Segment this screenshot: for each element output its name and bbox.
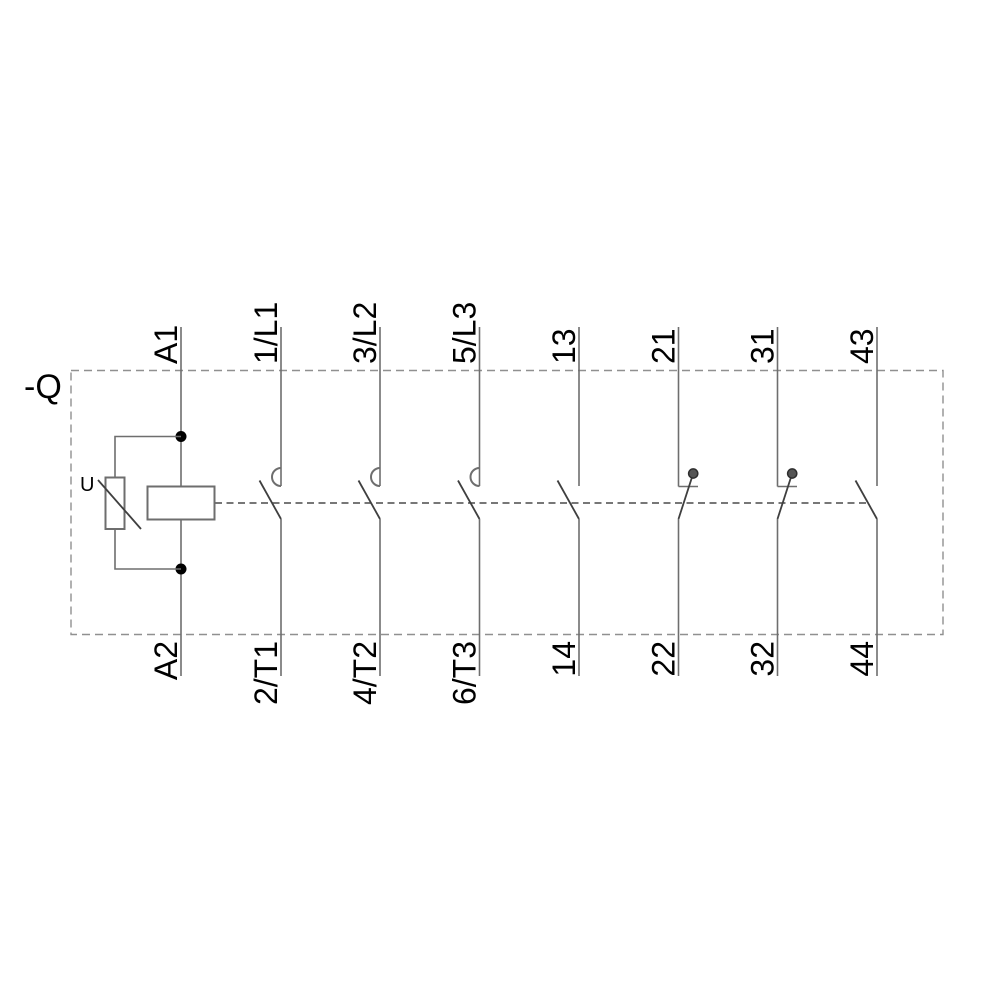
terminal-label-a2: A2 <box>148 641 184 680</box>
terminal-label-43: 43 <box>844 328 880 364</box>
main-contact-icon <box>272 468 281 486</box>
terminal-label-2t1: 2/T1 <box>248 641 284 705</box>
terminal-label-44: 44 <box>844 641 880 677</box>
suppressor-branch-top-wire <box>115 437 181 478</box>
terminal-label-13: 13 <box>546 328 582 364</box>
varistor-symbol <box>106 478 125 530</box>
pole-43: 43 44 <box>844 327 880 677</box>
varistor-diagonal-stroke <box>98 480 141 529</box>
nc-contact-pivot-icon <box>689 469 698 478</box>
terminal-label-21: 21 <box>646 328 682 364</box>
terminal-label-31: 31 <box>745 328 781 364</box>
pole-31: 31 32 <box>745 327 798 677</box>
coil-symbol <box>148 487 215 520</box>
contactor-wiring-diagram: -Q U A1 A2 1/L1 2/T1 3/L2 4/T2 <box>0 0 1000 1000</box>
terminal-label-3l2: 3/L2 <box>347 302 383 364</box>
pole-13: 13 14 <box>546 327 582 677</box>
terminal-label-5l3: 5/L3 <box>447 302 483 364</box>
terminal-label-a1: A1 <box>148 325 184 364</box>
schematic-canvas: -Q U A1 A2 1/L1 2/T1 3/L2 4/T2 <box>0 0 1000 1000</box>
no-contact-blade-icon <box>856 481 878 520</box>
coil-branch: U A1 A2 <box>80 325 215 680</box>
nc-contact-blade-icon <box>778 474 793 520</box>
nc-contact-blade-icon <box>679 474 694 520</box>
main-contact-icon <box>371 468 380 486</box>
terminal-label-14: 14 <box>546 641 582 677</box>
terminal-label-1l1: 1/L1 <box>248 302 284 364</box>
terminal-label-4t2: 4/T2 <box>347 641 383 705</box>
no-contact-blade-icon <box>558 481 580 520</box>
suppressor-branch-bottom-wire <box>115 529 181 569</box>
main-contact-icon <box>471 468 480 486</box>
terminal-label-22: 22 <box>646 641 682 677</box>
terminal-label-6t3: 6/T3 <box>447 641 483 705</box>
terminal-label-32: 32 <box>745 641 781 677</box>
device-designation-label: -Q <box>24 368 62 406</box>
pole-21: 21 22 <box>646 327 699 677</box>
nc-contact-pivot-icon <box>788 469 797 478</box>
suppressor-voltage-label: U <box>80 474 94 496</box>
